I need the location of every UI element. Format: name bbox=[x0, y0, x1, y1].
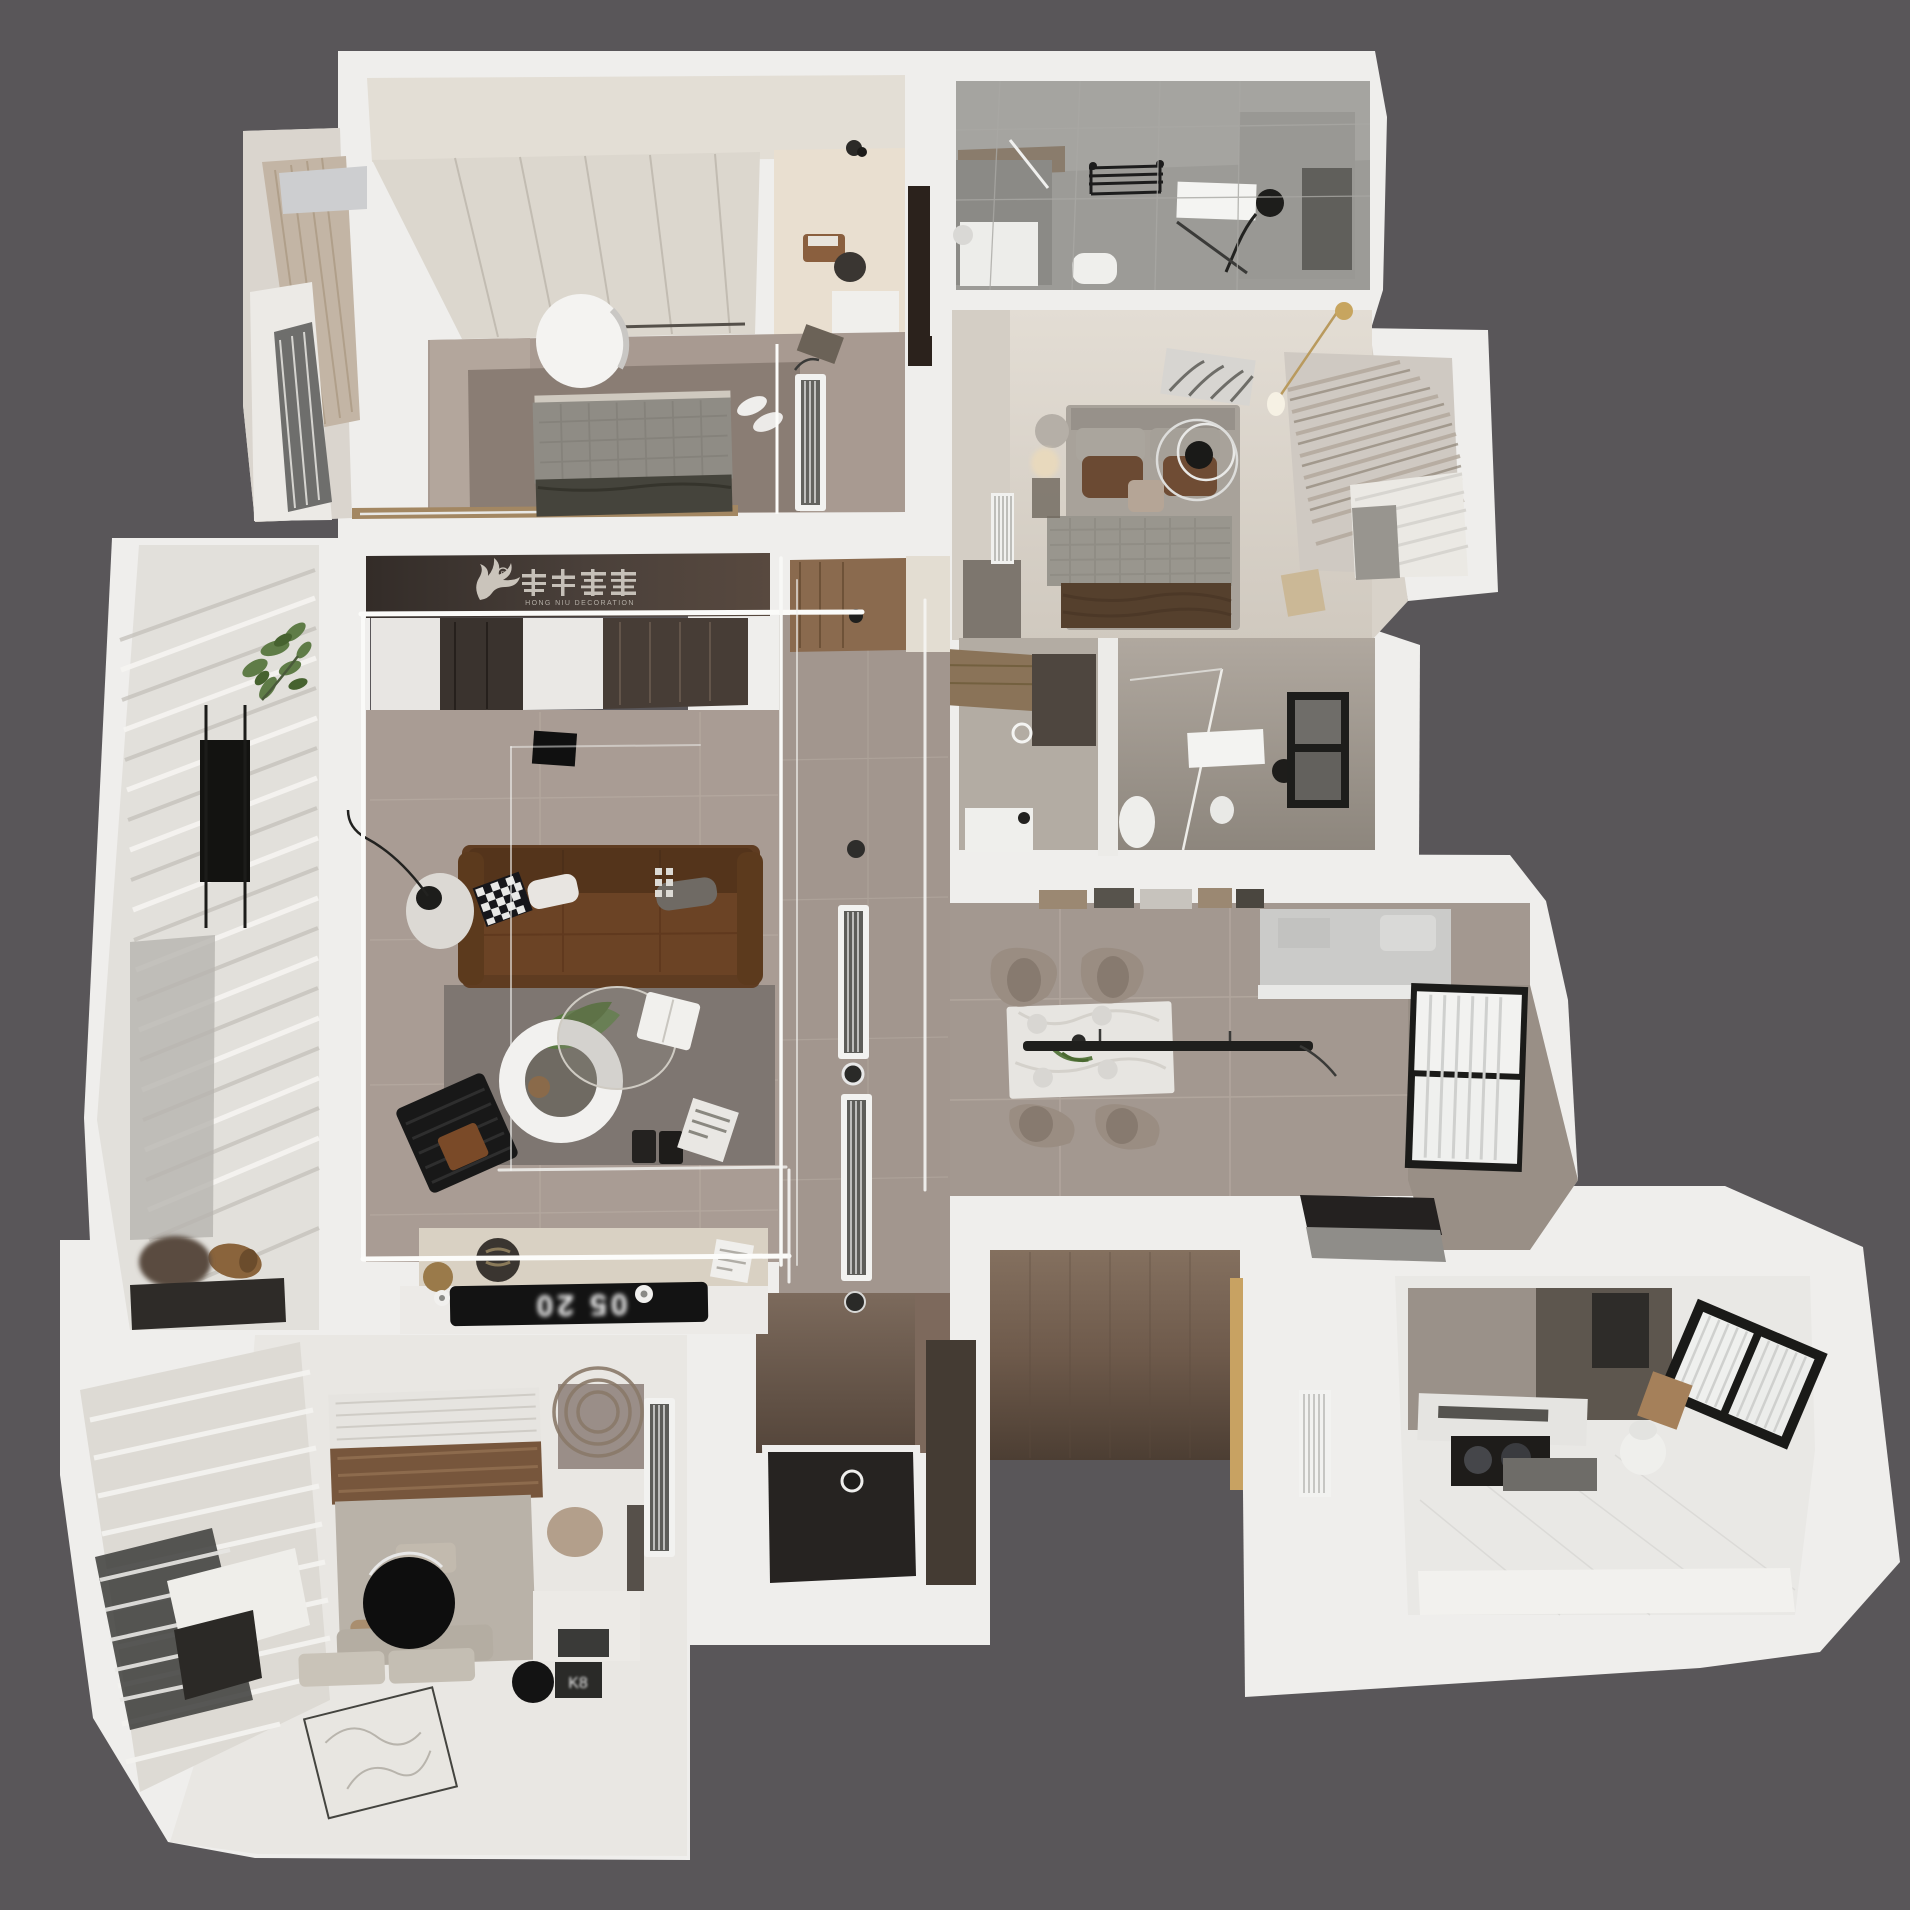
svg-text:05 20: 05 20 bbox=[532, 1287, 628, 1322]
svg-text:HONG NIU DECORATION: HONG NIU DECORATION bbox=[525, 600, 635, 607]
svg-text:K8: K8 bbox=[568, 1675, 588, 1692]
svg-text:R: R bbox=[500, 572, 505, 579]
